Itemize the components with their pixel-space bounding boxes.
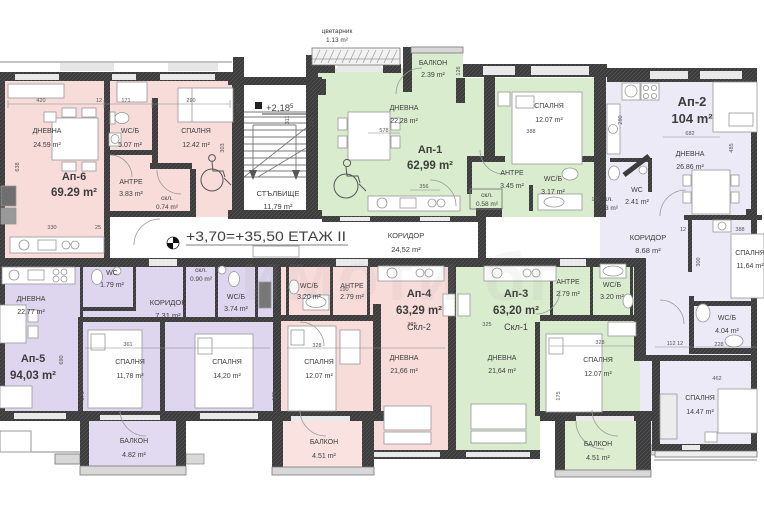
svg-text:69.29 m²: 69.29 m² [51, 187, 97, 199]
svg-text:171: 171 [121, 98, 130, 104]
svg-text:скл.: скл. [601, 196, 613, 203]
svg-text:253: 253 [309, 117, 315, 126]
svg-text:3.17 m²: 3.17 m² [541, 189, 565, 196]
svg-text:СПАЛНЯ: СПАЛНЯ [304, 359, 334, 366]
svg-text:АНТРЕ: АНТРЕ [556, 279, 580, 286]
svg-text:ДНЕВНА: ДНЕВНА [17, 296, 46, 303]
svg-text:WC: WC [106, 270, 118, 277]
svg-text:WC/Б: WC/Б [603, 282, 622, 289]
svg-text:388: 388 [735, 227, 744, 233]
svg-text:12: 12 [96, 98, 102, 104]
svg-text:1.79 m²: 1.79 m² [100, 282, 124, 289]
svg-text:578: 578 [379, 128, 388, 134]
svg-text:КОРИДОР: КОРИДОР [150, 298, 186, 307]
svg-text:АНТРЕ: АНТРЕ [119, 179, 143, 186]
svg-text:WC: WC [631, 187, 643, 194]
svg-text:СПАЛНЯ: СПАЛНЯ [685, 395, 715, 402]
svg-text:253: 253 [236, 103, 242, 112]
svg-text:180: 180 [231, 317, 240, 323]
svg-text:14.47 m²: 14.47 m² [686, 409, 714, 416]
svg-text:0.74 m²: 0.74 m² [156, 204, 179, 211]
svg-text:3.20 m²: 3.20 m² [600, 294, 624, 301]
svg-text:ДНЕВНА: ДНЕВНА [488, 355, 517, 362]
svg-text:388: 388 [526, 129, 535, 135]
svg-text:112 12: 112 12 [667, 341, 683, 347]
svg-text:485: 485 [729, 143, 735, 152]
svg-text:5.07 m²: 5.07 m² [118, 142, 142, 149]
svg-text:11,79 m²: 11,79 m² [263, 202, 293, 211]
svg-text:WC/Б: WC/Б [121, 128, 140, 135]
svg-text:21,64 m²: 21,64 m² [488, 368, 516, 375]
svg-text:имоти бг: имоти бг [240, 239, 559, 315]
svg-text:Скл-1: Скл-1 [504, 322, 528, 332]
svg-text:2.41 m²: 2.41 m² [625, 199, 649, 206]
svg-text:0.90 m²: 0.90 m² [190, 276, 213, 283]
svg-text:94,03 m²: 94,03 m² [10, 370, 56, 382]
svg-text:БАЛКОН: БАЛКОН [584, 441, 612, 448]
svg-text:Ап-2: Ап-2 [678, 94, 707, 109]
svg-text:22,28 m²: 22,28 m² [390, 118, 418, 125]
svg-text:14,20 m²: 14,20 m² [213, 373, 241, 380]
svg-text:300: 300 [696, 257, 702, 266]
svg-text:КОРИДОР: КОРИДОР [630, 233, 666, 242]
svg-text:303: 303 [220, 143, 226, 152]
svg-text:цветарник: цветарник [322, 28, 353, 35]
svg-text:ДНЕВНА: ДНЕВНА [390, 105, 419, 112]
svg-text:СПАЛНЯ: СПАЛНЯ [115, 359, 145, 366]
svg-text:0.58 m²: 0.58 m² [476, 201, 499, 208]
svg-text:WC/Б: WC/Б [544, 176, 563, 183]
svg-text:Ап-6: Ап-6 [62, 171, 86, 183]
svg-text:21,66 m²: 21,66 m² [390, 368, 418, 375]
svg-text:4.51 m²: 4.51 m² [586, 455, 610, 462]
svg-text:4.04 m²: 4.04 m² [715, 328, 739, 335]
svg-text:22,77 m²: 22,77 m² [17, 309, 45, 316]
svg-text:3.83 m²: 3.83 m² [119, 191, 143, 198]
svg-text:328: 328 [312, 343, 321, 349]
svg-text:280: 280 [618, 115, 624, 124]
svg-text:Ап-5: Ап-5 [21, 353, 45, 365]
svg-text:104 m²: 104 m² [671, 111, 713, 126]
svg-text:1.13 m²: 1.13 m² [326, 37, 349, 44]
svg-text:12.42 m²: 12.42 m² [182, 142, 210, 149]
svg-text:3.45 m²: 3.45 m² [500, 183, 524, 190]
svg-text:СПАЛНЯ: СПАЛНЯ [583, 357, 613, 364]
svg-text:228: 228 [714, 342, 723, 348]
svg-text:175: 175 [556, 391, 562, 400]
svg-text:0.63 m²: 0.63 m² [596, 205, 619, 212]
svg-text:АНТРЕ: АНТРЕ [500, 170, 524, 177]
svg-text:11,78 m²: 11,78 m² [116, 373, 144, 380]
svg-text:СПАЛНЯ: СПАЛНЯ [735, 250, 764, 257]
svg-text:Ап-1: Ап-1 [418, 144, 442, 156]
svg-text:462: 462 [712, 376, 721, 382]
svg-text:24.59 m²: 24.59 m² [33, 142, 61, 149]
svg-text:БАЛКОН: БАЛКОН [120, 438, 148, 445]
svg-text:175: 175 [272, 391, 278, 400]
svg-text:325: 325 [407, 322, 416, 328]
svg-text:126: 126 [456, 66, 462, 75]
svg-text:11,64 m²: 11,64 m² [736, 263, 764, 270]
svg-text:356: 356 [419, 184, 428, 190]
svg-text:БАЛКОН: БАЛКОН [419, 60, 447, 67]
svg-text:+2,185: +2,185 [266, 103, 294, 114]
svg-text:12: 12 [680, 227, 686, 233]
svg-text:скл.: скл. [195, 267, 207, 274]
svg-text:175: 175 [80, 391, 86, 400]
svg-text:ДНЕВНА: ДНЕВНА [676, 151, 705, 158]
svg-text:4.82 m²: 4.82 m² [122, 452, 146, 459]
svg-text:WC/Б: WC/Б [718, 315, 737, 322]
svg-text:682: 682 [685, 131, 694, 137]
svg-text:290: 290 [186, 98, 195, 104]
svg-text:4.51 m²: 4.51 m² [312, 453, 336, 460]
svg-text:325: 325 [482, 322, 491, 328]
svg-text:СТЪЛБИЩЕ: СТЪЛБИЩЕ [257, 189, 300, 198]
svg-text:2.39 m²: 2.39 m² [421, 72, 445, 79]
svg-text:7,31 m²: 7,31 m² [155, 311, 181, 320]
svg-text:328: 328 [595, 340, 604, 346]
svg-text:62,99 m²: 62,99 m² [407, 160, 453, 172]
svg-text:638: 638 [15, 162, 21, 171]
svg-text:311: 311 [285, 116, 291, 125]
svg-text:ДНЕВНА: ДНЕВНА [390, 355, 419, 362]
svg-text:БАЛКОН: БАЛКОН [310, 439, 338, 446]
svg-text:25: 25 [95, 225, 101, 231]
svg-text:СПАЛНЯ: СПАЛНЯ [181, 128, 211, 135]
svg-text:2.79 m²: 2.79 m² [556, 291, 580, 298]
svg-text:12.07 m²: 12.07 m² [535, 117, 563, 124]
svg-text:690: 690 [59, 355, 65, 364]
svg-text:СПАЛНЯ: СПАЛНЯ [534, 103, 564, 110]
svg-text:скл.: скл. [161, 195, 173, 202]
svg-text:420: 420 [36, 98, 45, 104]
svg-text:12.07 m²: 12.07 m² [305, 373, 333, 380]
svg-text:330: 330 [47, 225, 56, 231]
svg-text:12.07 m²: 12.07 m² [584, 371, 612, 378]
svg-text:скл.: скл. [481, 192, 493, 199]
svg-text:361: 361 [123, 342, 132, 348]
svg-text:185: 185 [591, 197, 600, 203]
svg-text:26.86 m²: 26.86 m² [676, 164, 704, 171]
svg-text:СПАЛНЯ: СПАЛНЯ [212, 359, 242, 366]
svg-text:ДНЕВНА: ДНЕВНА [33, 128, 62, 135]
svg-text:8.68 m²: 8.68 m² [635, 246, 661, 255]
